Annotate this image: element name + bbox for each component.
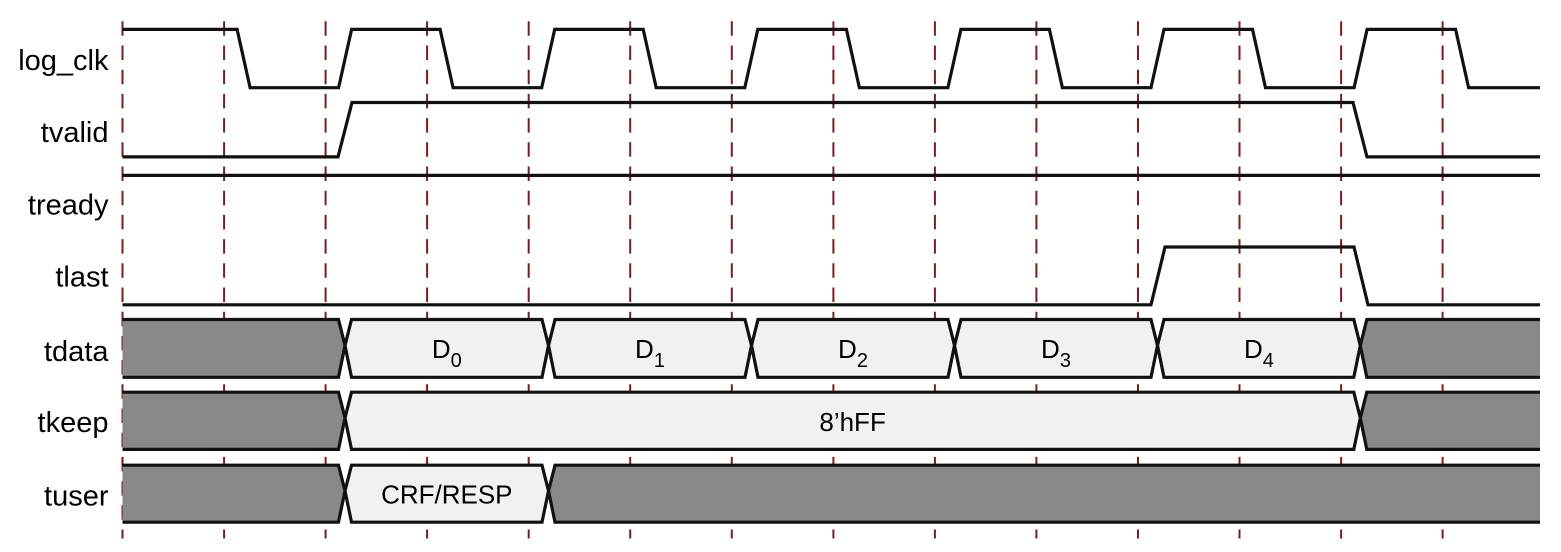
- svg-text:tready: tready: [28, 190, 109, 222]
- svg-text:CRF/RESP: CRF/RESP: [381, 479, 512, 509]
- svg-text:tlast: tlast: [55, 262, 108, 294]
- svg-text:8’hFF: 8’hFF: [819, 407, 885, 437]
- svg-text:log_clk: log_clk: [18, 45, 109, 77]
- svg-text:tuser: tuser: [44, 480, 109, 512]
- svg-text:tdata: tdata: [44, 336, 109, 368]
- svg-text:tvalid: tvalid: [41, 117, 109, 149]
- svg-text:tkeep: tkeep: [38, 407, 109, 439]
